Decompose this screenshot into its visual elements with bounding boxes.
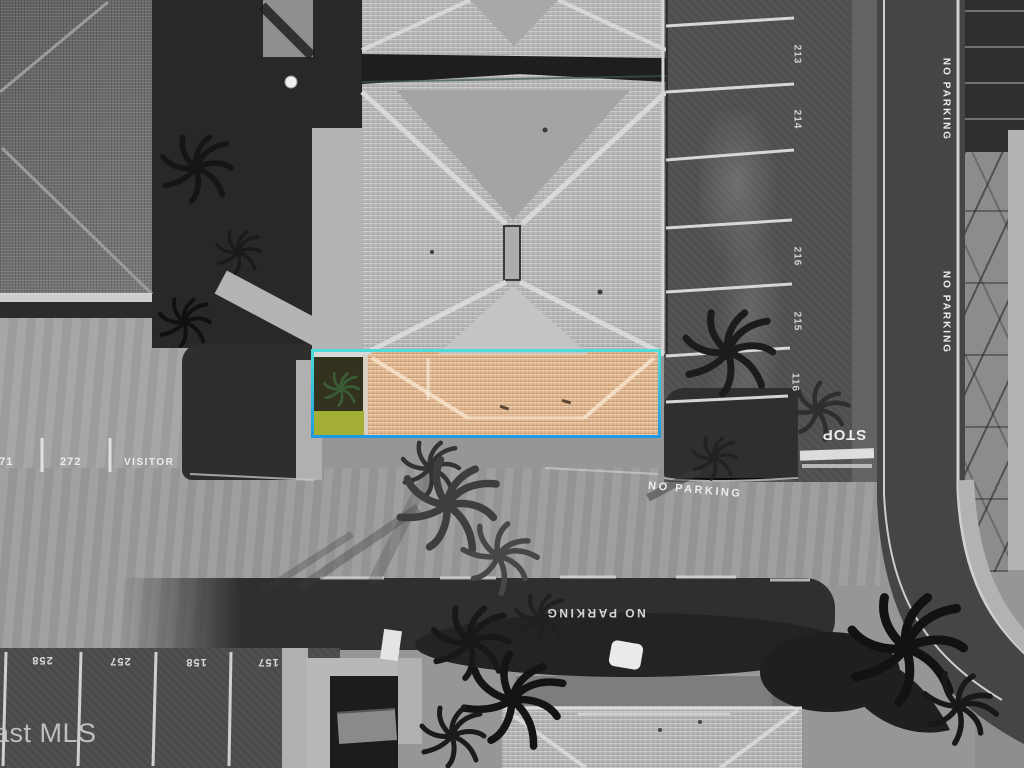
- no-parking-marking-right-lower: NO PARKING: [941, 265, 952, 361]
- parking-label-213: 213: [792, 38, 803, 72]
- parked-car: [608, 639, 644, 670]
- no-parking-marking-right-upper: NO PARKING: [941, 52, 952, 148]
- rooftop-dot: [285, 76, 297, 88]
- vegetation-shadow: [262, 6, 312, 56]
- no-parking-marking-lower: NO PARKING: [545, 606, 646, 620]
- mls-watermark: ast MLS: [0, 718, 97, 749]
- parking-label-116: 116: [790, 366, 801, 400]
- parking-label-271: 271: [0, 456, 13, 468]
- parking-label-258: 258: [22, 654, 62, 666]
- parking-label-157: 157: [248, 656, 288, 668]
- lower-road-dashes: [320, 577, 810, 580]
- stop-bar: [800, 448, 874, 468]
- top-left-roof-ridges: [0, 2, 152, 294]
- parking-label-216: 216: [792, 240, 803, 274]
- parking-label-214: 214: [792, 103, 803, 137]
- stop-marking: STOP: [818, 426, 870, 443]
- center-roof-features: [362, 0, 667, 354]
- parking-label-215: 215: [792, 305, 803, 339]
- bottom-building-ridges: [502, 708, 802, 768]
- right-road: [884, 0, 1024, 706]
- aerial-photo-scene: 271 272 VISITOR 213 214 216 215 116 258 …: [0, 0, 1024, 768]
- parking-label-257: 257: [100, 655, 140, 667]
- parking-label-visitor: VISITOR: [124, 457, 174, 468]
- curb-lines-middle-road: [190, 468, 798, 481]
- parking-label-158: 158: [176, 656, 216, 668]
- highlighted-property-boundary: [311, 349, 661, 438]
- parking-label-272: 272: [60, 456, 81, 468]
